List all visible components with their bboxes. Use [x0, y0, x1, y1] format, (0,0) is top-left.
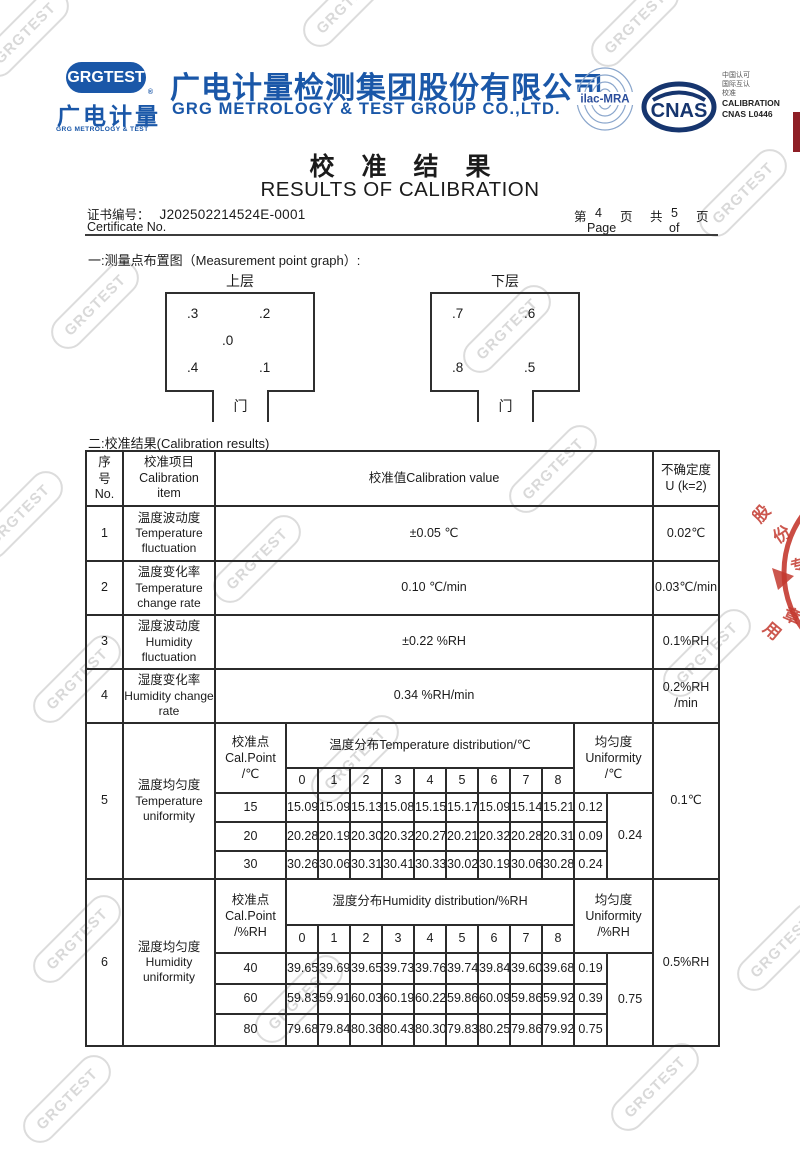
row-item: 温度波动度Temperature fluctuation: [123, 506, 215, 561]
svg-text:份: 份: [769, 521, 795, 548]
row-item: 温度均匀度Temperature uniformity: [123, 723, 215, 879]
point-col: 4: [414, 925, 446, 953]
value-cell: 39.73: [382, 953, 414, 984]
row-uncertainty: 0.1%RH: [653, 615, 719, 669]
cal-point: 15: [215, 793, 286, 822]
row-item: 湿度变化率Humidity change rate: [123, 669, 215, 723]
value-cell: 15.09: [286, 793, 318, 822]
value-cell: 15.09: [478, 793, 510, 822]
value-cell: 20.28: [286, 822, 318, 851]
row-uncertainty: 0.02℃: [653, 506, 719, 561]
value-cell: 30.02: [446, 851, 478, 879]
value-cell: 60.22: [414, 984, 446, 1014]
value-cell: 20.27: [414, 822, 446, 851]
point-col: 6: [478, 925, 510, 953]
door-label: 门: [212, 396, 269, 416]
lower-layer-label: 下层: [430, 271, 580, 291]
value-cell: 59.86: [446, 984, 478, 1014]
value-cell: 20.32: [382, 822, 414, 851]
calibration-results-table: 序号No. 校准项目Calibrationitem 校准值Calibration…: [85, 450, 720, 1047]
grgtest-logo-text: GRGTEST: [67, 69, 144, 87]
cal-point: 80: [215, 1014, 286, 1046]
table-row: 2 温度变化率Temperature change rate 0.10 ℃/mi…: [86, 561, 719, 615]
certificate-bar: 证书编号：J202502214524E-0001 Certificate No.…: [85, 204, 718, 236]
row-uncertainty: 0.5%RH: [653, 879, 719, 1046]
uniformity-header: 均匀度Uniformity/℃: [574, 723, 653, 793]
point-col: 3: [382, 768, 414, 793]
row-uniformity: 0.39: [574, 984, 607, 1014]
page-title-en: RESULTS OF CALIBRATION: [0, 178, 800, 202]
watermark: GRGTEST: [0, 0, 76, 84]
watermark: GRGTEST: [604, 1036, 706, 1138]
accreditation-text: 中国认可 国际互认 校准 CALIBRATION CNAS L0446: [722, 72, 780, 120]
certificate-label-en: Certificate No.: [87, 220, 166, 234]
value-cell: 15.15: [414, 793, 446, 822]
uniformity-header: 均匀度Uniformity/%RH: [574, 879, 653, 953]
point-col: 0: [286, 925, 318, 953]
value-cell: 20.19: [318, 822, 350, 851]
measurement-point-diagrams: 上层 .3 .2 .0 .4 .1 门 下层 .7 .6 .8 .5 门: [0, 268, 800, 433]
overall-uniformity: 0.24: [607, 793, 653, 879]
red-stamp-fragment: [793, 112, 800, 152]
point-col: 1: [318, 925, 350, 953]
grgtest-logo-badge: GRGTEST ®: [66, 62, 146, 93]
point-2: .2: [259, 306, 270, 321]
point-3: .3: [187, 306, 198, 321]
value-cell: 30.06: [318, 851, 350, 879]
row-uncertainty: 0.2%RH /min: [653, 669, 719, 723]
page-word: 页: [620, 206, 633, 225]
value-cell: 39.76: [414, 953, 446, 984]
value-cell: 80.43: [382, 1014, 414, 1046]
watermark: GRGTEST: [730, 896, 800, 998]
row-no: 4: [86, 669, 123, 723]
page-number-block: 第 4 页 共 5 页 Page of: [574, 204, 716, 234]
uniformity-header-row: 5 温度均匀度Temperature uniformity 校准点Cal.Poi…: [86, 723, 719, 768]
row-value: 0.10 ℃/min: [215, 561, 653, 615]
value-cell: 79.92: [542, 1014, 574, 1046]
overall-uniformity: 0.75: [607, 953, 653, 1046]
point-7: .7: [452, 306, 463, 321]
header-item: 校准项目Calibrationitem: [123, 451, 215, 506]
uniformity-header-row: 6 湿度均匀度Humidity uniformity 校准点Cal.Point/…: [86, 879, 719, 925]
table-row: 3 湿度波动度Humidity fluctuation ±0.22 %RH 0.…: [86, 615, 719, 669]
distribution-header: 温度分布Temperature distribution/℃: [286, 723, 574, 768]
box-bottom-right: [534, 390, 580, 392]
page-word: 第: [574, 206, 587, 225]
point-8: .8: [452, 360, 463, 375]
value-cell: 20.32: [478, 822, 510, 851]
header-value: 校准值Calibration value: [215, 451, 653, 506]
logo-name-en: GRG METROLOGY & TEST: [56, 126, 149, 133]
value-cell: 20.28: [510, 822, 542, 851]
value-cell: 39.84: [478, 953, 510, 984]
svg-text:股: 股: [752, 501, 774, 526]
point-col: 0: [286, 768, 318, 793]
value-cell: 15.14: [510, 793, 542, 822]
point-col: 5: [446, 925, 478, 953]
watermark: GRGTEST: [16, 1048, 118, 1150]
value-cell: 60.03: [350, 984, 382, 1014]
value-cell: 15.17: [446, 793, 478, 822]
page-word: 页: [696, 206, 709, 225]
lower-layer-box: .7 .6 .8 .5 门: [430, 292, 580, 390]
cnas-logo: CNAS: [641, 81, 717, 138]
value-cell: 79.86: [510, 1014, 542, 1046]
point-col: 7: [510, 768, 542, 793]
accreditation-line: 国际互认: [722, 81, 780, 90]
row-uniformity: 0.19: [574, 953, 607, 984]
cal-point: 20: [215, 822, 286, 851]
svg-text:专: 专: [789, 555, 800, 576]
ilac-mra-logo: ilac-MRA: [574, 66, 636, 137]
door-label: 门: [477, 396, 534, 416]
row-uniformity: 0.09: [574, 822, 607, 851]
page-en-label: Page: [587, 221, 616, 235]
value-cell: 80.30: [414, 1014, 446, 1046]
value-cell: 15.13: [350, 793, 382, 822]
value-cell: 39.65: [286, 953, 318, 984]
value-cell: 59.91: [318, 984, 350, 1014]
section1-heading: 一:测量点布置图（Measurement point graph）:: [88, 250, 360, 269]
value-cell: 79.83: [446, 1014, 478, 1046]
value-cell: 60.09: [478, 984, 510, 1014]
row-uniformity: 0.75: [574, 1014, 607, 1046]
value-cell: 30.26: [286, 851, 318, 879]
point-col: 2: [350, 925, 382, 953]
of-en-label: of: [669, 221, 679, 235]
value-cell: 30.31: [350, 851, 382, 879]
row-value: ±0.22 %RH: [215, 615, 653, 669]
row-item: 湿度波动度Humidity fluctuation: [123, 615, 215, 669]
registered-mark: ®: [148, 89, 153, 96]
row-item: 湿度均匀度Humidity uniformity: [123, 879, 215, 1046]
box-bottom-right: [269, 390, 315, 392]
value-cell: 20.30: [350, 822, 382, 851]
point-col: 2: [350, 768, 382, 793]
value-cell: 20.21: [446, 822, 478, 851]
row-no: 5: [86, 723, 123, 879]
table-row: 1 温度波动度Temperature fluctuation ±0.05 ℃ 0…: [86, 506, 719, 561]
page-word: 共: [650, 206, 663, 225]
value-cell: 79.68: [286, 1014, 318, 1046]
red-company-seal: 股 份 专 用 章: [752, 468, 800, 681]
value-cell: 30.28: [542, 851, 574, 879]
header-uncertainty: 不确定度U (k=2): [653, 451, 719, 506]
svg-text:用: 用: [759, 619, 784, 644]
value-cell: 39.68: [542, 953, 574, 984]
accreditation-line: 中国认可: [722, 72, 780, 81]
row-uniformity: 0.12: [574, 793, 607, 822]
value-cell: 30.41: [382, 851, 414, 879]
cal-point: 40: [215, 953, 286, 984]
accreditation-cnas-number: CNAS L0446: [722, 109, 780, 120]
upper-layer-label: 上层: [165, 271, 315, 291]
company-name-en: GRG METROLOGY & TEST GROUP CO.,LTD.: [172, 100, 561, 119]
point-col: 3: [382, 925, 414, 953]
point-col: 6: [478, 768, 510, 793]
cal-point: 60: [215, 984, 286, 1014]
point-4: .4: [187, 360, 198, 375]
row-no: 6: [86, 879, 123, 1046]
value-cell: 59.86: [510, 984, 542, 1014]
accreditation-calibration: CALIBRATION: [722, 98, 780, 109]
value-cell: 30.33: [414, 851, 446, 879]
table-header-row: 序号No. 校准项目Calibrationitem 校准值Calibration…: [86, 451, 719, 506]
cal-point-header: 校准点Cal.Point/%RH: [215, 879, 286, 953]
svg-text:章: 章: [780, 603, 800, 628]
table-row: 4 湿度变化率Humidity change rate 0.34 %RH/min…: [86, 669, 719, 723]
box-bottom-left: [430, 390, 479, 392]
row-value: ±0.05 ℃: [215, 506, 653, 561]
cal-point-header: 校准点Cal.Point/℃: [215, 723, 286, 793]
point-col: 4: [414, 768, 446, 793]
watermark: GRGTEST: [0, 464, 70, 566]
row-no: 2: [86, 561, 123, 615]
value-cell: 39.65: [350, 953, 382, 984]
value-cell: 30.06: [510, 851, 542, 879]
row-value: 0.34 %RH/min: [215, 669, 653, 723]
value-cell: 59.92: [542, 984, 574, 1014]
box-bottom-left: [165, 390, 214, 392]
watermark: GRGTEST: [296, 0, 398, 54]
header-no: 序号No.: [86, 451, 123, 506]
point-col: 8: [542, 768, 574, 793]
value-cell: 39.69: [318, 953, 350, 984]
point-col: 8: [542, 925, 574, 953]
value-cell: 39.74: [446, 953, 478, 984]
value-cell: 60.19: [382, 984, 414, 1014]
svg-text:CNAS: CNAS: [651, 100, 708, 122]
accreditation-line: 校准: [722, 90, 780, 99]
distribution-header: 湿度分布Humidity distribution/%RH: [286, 879, 574, 925]
upper-layer-box: .3 .2 .0 .4 .1 门: [165, 292, 315, 390]
value-cell: 15.21: [542, 793, 574, 822]
point-col: 1: [318, 768, 350, 793]
value-cell: 79.84: [318, 1014, 350, 1046]
point-6: .6: [524, 306, 535, 321]
value-cell: 20.31: [542, 822, 574, 851]
row-uniformity: 0.24: [574, 851, 607, 879]
page-number: 4: [595, 206, 602, 220]
point-5: .5: [524, 360, 535, 375]
row-no: 1: [86, 506, 123, 561]
value-cell: 59.83: [286, 984, 318, 1014]
value-cell: 80.25: [478, 1014, 510, 1046]
row-uncertainty: 0.1℃: [653, 723, 719, 879]
value-cell: 30.19: [478, 851, 510, 879]
cal-point: 30: [215, 851, 286, 879]
value-cell: 15.09: [318, 793, 350, 822]
row-uncertainty: 0.03℃/min: [653, 561, 719, 615]
value-cell: 80.36: [350, 1014, 382, 1046]
svg-text:ilac-MRA: ilac-MRA: [580, 94, 629, 106]
row-item: 温度变化率Temperature change rate: [123, 561, 215, 615]
row-no: 3: [86, 615, 123, 669]
point-col: 5: [446, 768, 478, 793]
certificate-number: J202502214524E-0001: [160, 207, 306, 222]
point-col: 7: [510, 925, 542, 953]
value-cell: 39.60: [510, 953, 542, 984]
page-total: 5: [671, 206, 678, 220]
point-0: .0: [222, 333, 233, 348]
value-cell: 15.08: [382, 793, 414, 822]
point-1: .1: [259, 360, 270, 375]
